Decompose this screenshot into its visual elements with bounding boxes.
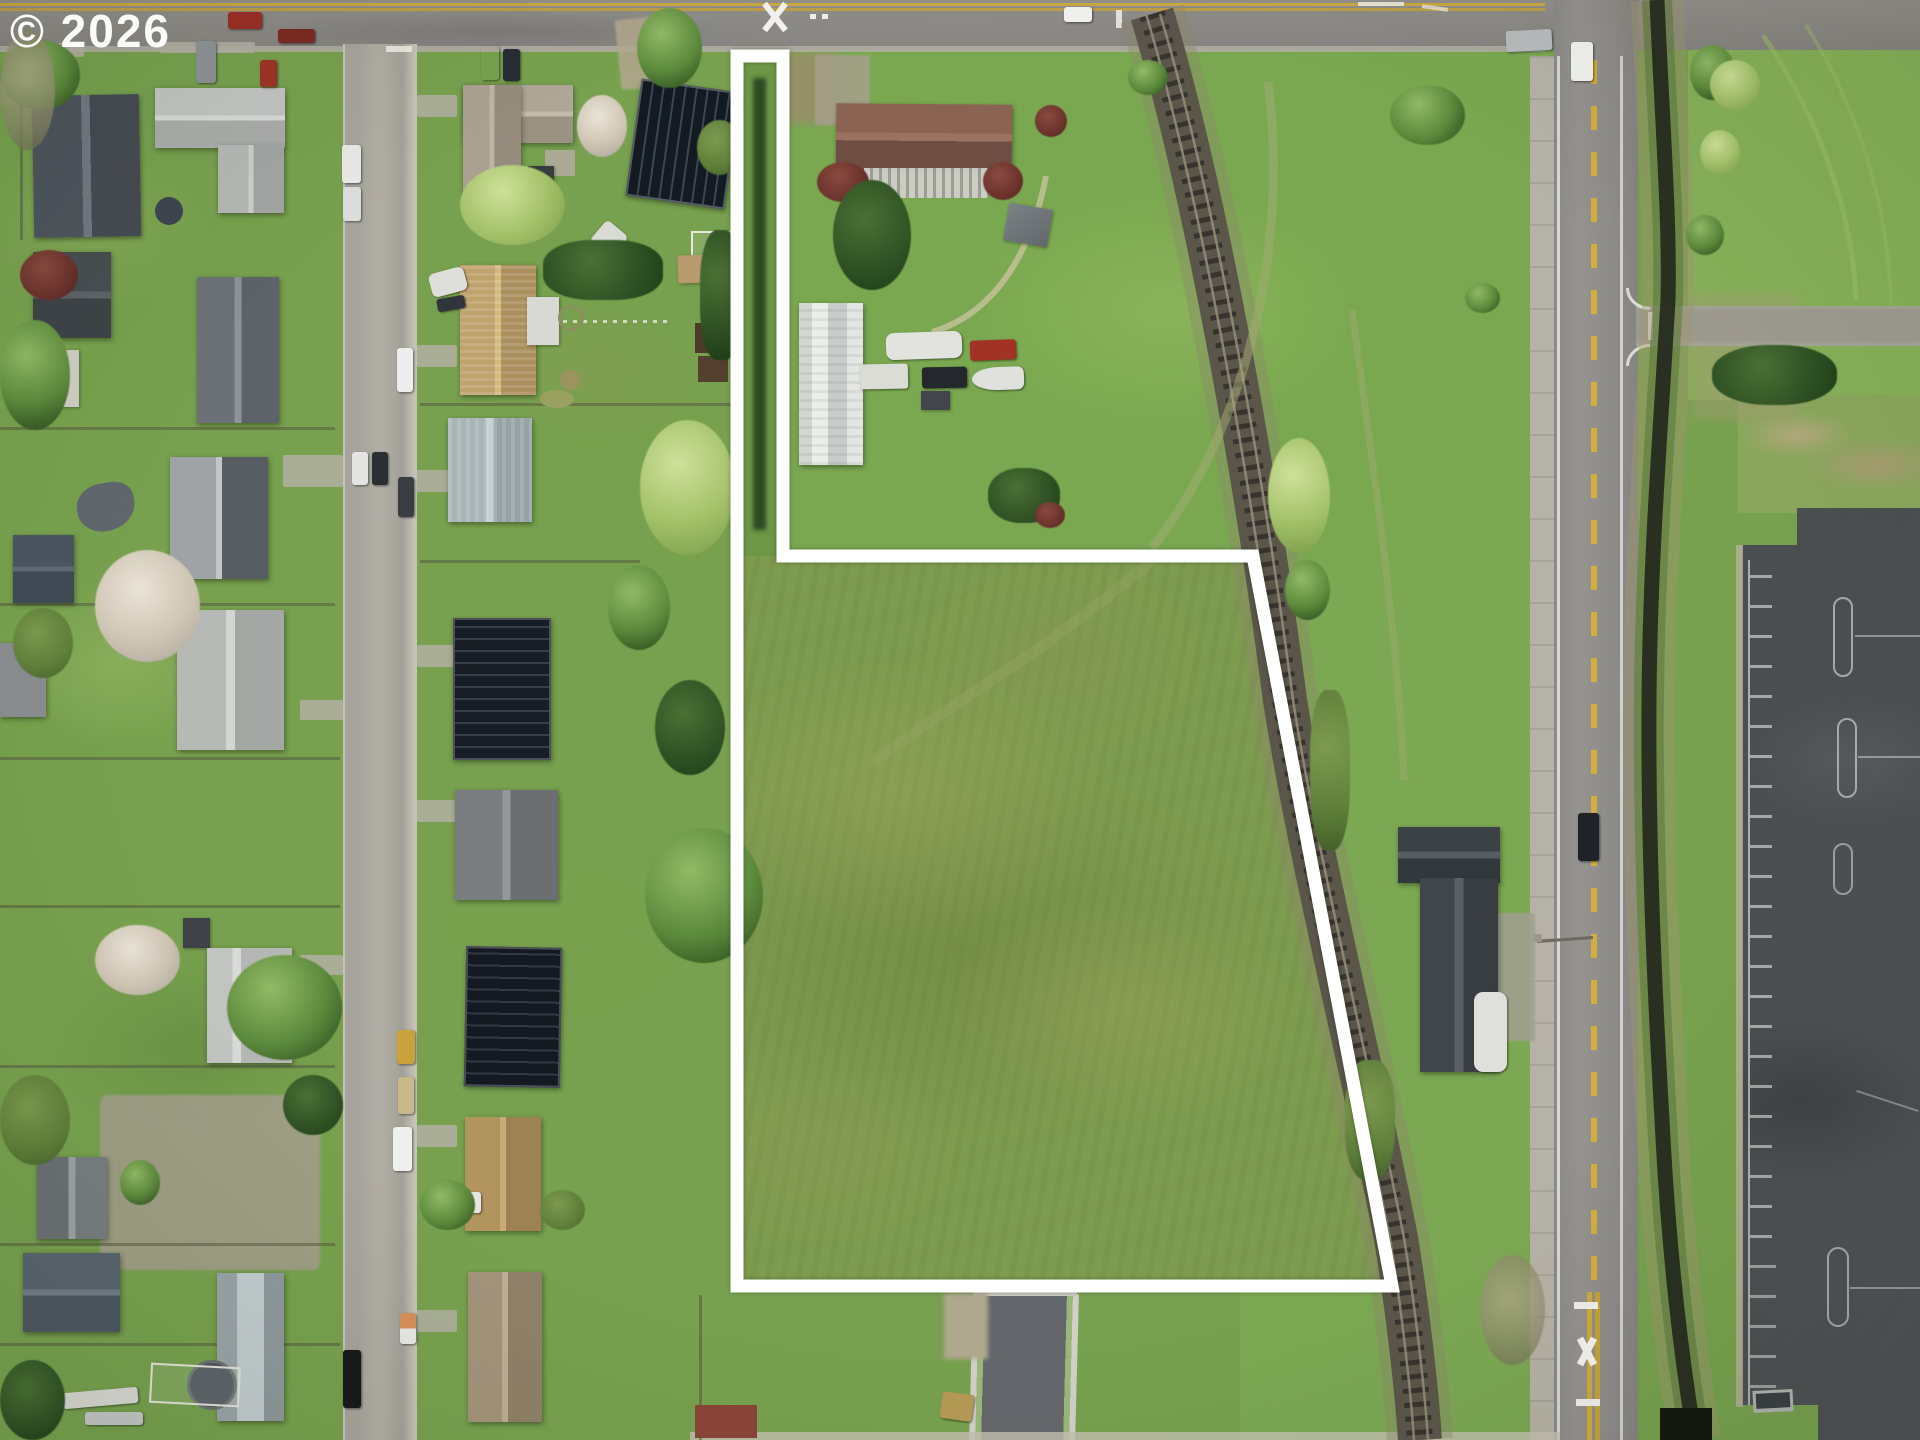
- brown-house-roof: [836, 103, 1013, 171]
- hedge-row: [700, 230, 742, 360]
- top-road-yellow-line-1: [0, 3, 1545, 6]
- fence-line: [420, 403, 735, 406]
- side-road-east: [1636, 306, 1920, 346]
- highway-sidewalk: [1530, 56, 1554, 1440]
- highway-center-dashes: [1591, 60, 1597, 1292]
- rr-letters-top-2: [822, 14, 828, 19]
- driveway-apron: [283, 455, 343, 487]
- tree-canopy: [0, 1360, 65, 1440]
- fence-line: [0, 905, 340, 908]
- red-pickup: [970, 339, 1017, 361]
- lot-island-2: [1837, 718, 1857, 798]
- parked-car-corner: [1505, 29, 1552, 52]
- gray-pickup: [196, 41, 216, 83]
- house-roof: [170, 457, 268, 579]
- lot-line-2: [1858, 756, 1920, 758]
- house-roof: [23, 1253, 120, 1332]
- solar-house-roof: [453, 618, 551, 760]
- blossom-tree: [95, 550, 200, 662]
- car-on-top-road: [1064, 7, 1092, 22]
- conifer: [655, 680, 725, 775]
- lot-stall-ticks: [1750, 575, 1772, 1255]
- tree-cluster: [227, 955, 342, 1060]
- tree-canopy: [1285, 560, 1330, 620]
- parked-car: [372, 452, 388, 485]
- pool-round: [155, 197, 183, 225]
- tree-canopy: [13, 608, 73, 678]
- driveway-apron: [300, 700, 343, 720]
- fence-line: [0, 1065, 335, 1068]
- rv-trailer: [886, 331, 963, 361]
- lot-curb-west: [1736, 545, 1743, 1407]
- tree-canopy: [0, 320, 70, 430]
- red-car-top: [228, 12, 262, 29]
- lot-line-1: [1855, 635, 1920, 637]
- fence-line: [0, 757, 340, 760]
- car-on-highway: [1578, 813, 1599, 861]
- driveway-apron: [417, 1310, 457, 1332]
- tree-canopy: [0, 1075, 70, 1165]
- lot-island-1: [1833, 597, 1853, 677]
- tree-canopy: [120, 1160, 160, 1205]
- rv-by-house: [1474, 992, 1507, 1072]
- parked-car: [342, 145, 361, 183]
- lot-pad-panel: [1756, 1392, 1791, 1409]
- parked-car: [400, 1313, 416, 1344]
- tree-canopy: [637, 8, 702, 88]
- highway-solid-yellow-2: [1595, 1292, 1600, 1440]
- access-strip-hedge: [753, 78, 766, 530]
- tree-canopy: [540, 1190, 585, 1230]
- bush-cluster: [1712, 345, 1837, 405]
- parked-car: [352, 452, 368, 485]
- lot-island-3: [1833, 843, 1853, 895]
- lot-island-4: [1827, 1247, 1849, 1327]
- tree-canopy: [1128, 60, 1168, 95]
- darkred-truck-top: [278, 29, 315, 43]
- large-conifer: [833, 180, 911, 290]
- solar-house-roof: [464, 946, 562, 1088]
- blossom-tree: [95, 925, 180, 995]
- lot-stall-ticks-2: [1750, 1265, 1776, 1405]
- white-garage: [527, 297, 559, 345]
- garden-circle: [560, 370, 580, 390]
- construction-equipment: [939, 1391, 974, 1422]
- highway-edge-line-east: [1620, 56, 1623, 1440]
- boat: [972, 366, 1025, 391]
- parked-car: [398, 477, 414, 517]
- maroon-bush: [1035, 502, 1065, 528]
- highway-edge-line-west: [1557, 56, 1560, 1440]
- driveway-apron: [417, 345, 457, 367]
- driveway-apron: [417, 95, 457, 117]
- highway-stop-bar-1: [1574, 1302, 1598, 1309]
- parked-pickup: [397, 348, 413, 392]
- highway-house-wing: [1398, 827, 1500, 883]
- parked-box-truck: [398, 1077, 414, 1114]
- gray-shed: [1003, 202, 1053, 247]
- parked-van-yellow: [397, 1030, 415, 1064]
- maroon-tree: [20, 250, 78, 300]
- stop-line-top-road: [1116, 10, 1122, 28]
- house-roof: [218, 145, 284, 213]
- driveway-apron: [417, 1125, 457, 1147]
- rr-letters-top: [810, 14, 816, 19]
- parked-car: [343, 187, 361, 221]
- trackside-tree: [1268, 438, 1330, 553]
- house-roof: [455, 790, 558, 900]
- parked-truck-black: [343, 1350, 361, 1408]
- side-road-stop-bar: [1648, 312, 1653, 340]
- tree-canopy: [420, 1180, 475, 1230]
- stub-curb-return: [973, 1291, 1077, 1296]
- driveway-car: [503, 49, 520, 81]
- intersection-dash-topright: [1358, 2, 1404, 6]
- blossom-tree: [577, 95, 627, 157]
- car-on-highway: [1571, 42, 1593, 81]
- driveway-van: [481, 46, 499, 80]
- field-tree: [1710, 60, 1760, 110]
- driveway-apron: [417, 800, 457, 822]
- left-street: [343, 44, 417, 1440]
- large-bright-tree: [645, 828, 763, 963]
- dark-pickup: [922, 367, 967, 389]
- culvert: [1660, 1408, 1712, 1440]
- fence-line: [0, 1243, 335, 1246]
- house-roof: [37, 1157, 107, 1239]
- ditch-tree: [1700, 130, 1740, 175]
- fence-line: [0, 1343, 340, 1346]
- maroon-tree: [983, 162, 1023, 200]
- aerial-photo-scene: © 2026: [0, 0, 1920, 1440]
- left-street-stopbar: [386, 46, 412, 52]
- tan-house-roof: [465, 1117, 541, 1231]
- metal-roof-house: [448, 418, 532, 522]
- house-roof: [468, 1272, 542, 1422]
- copyright-watermark: © 2026: [10, 4, 171, 58]
- tree-cluster: [640, 420, 735, 555]
- dark-garage: [183, 918, 210, 948]
- fence-line: [0, 427, 335, 430]
- highway-stop-bar-2: [1576, 1399, 1600, 1406]
- house-roof: [155, 88, 285, 148]
- red-fence-structure: [695, 1405, 757, 1438]
- cargo-trailer: [860, 364, 908, 390]
- tree-canopy: [697, 120, 742, 175]
- red-pickup-driveway: [260, 60, 277, 87]
- bare-tree: [1480, 1255, 1545, 1365]
- pergola-frame: [149, 1363, 241, 1408]
- bush: [1465, 283, 1500, 313]
- tree-canopy: [460, 165, 565, 245]
- fence-line: [420, 560, 640, 563]
- small-dark-shed: [921, 391, 950, 410]
- bush-cluster: [1390, 85, 1465, 145]
- trackside-brush: [1310, 690, 1350, 850]
- house-roof: [13, 535, 74, 603]
- driveway-apron: [417, 645, 457, 667]
- ditch-tree: [1686, 215, 1724, 255]
- bottom-edge-sidewalk: [690, 1432, 1560, 1440]
- utility-trailer: [85, 1412, 143, 1425]
- white-barn-roof: [799, 303, 863, 465]
- tree-canopy: [283, 1075, 343, 1135]
- lot-line-4: [1850, 1287, 1920, 1289]
- house-roof: [197, 277, 279, 423]
- stub-gravel: [944, 1293, 988, 1359]
- garden-oval: [540, 390, 574, 408]
- fire-pit-ring: [558, 305, 584, 331]
- trackside-brush: [1345, 1060, 1395, 1180]
- tree-canopy: [608, 565, 670, 650]
- red-bush: [1035, 105, 1067, 137]
- tan-house-roof: [460, 265, 536, 395]
- conifer-row: [543, 240, 663, 300]
- parked-pickup: [393, 1127, 412, 1171]
